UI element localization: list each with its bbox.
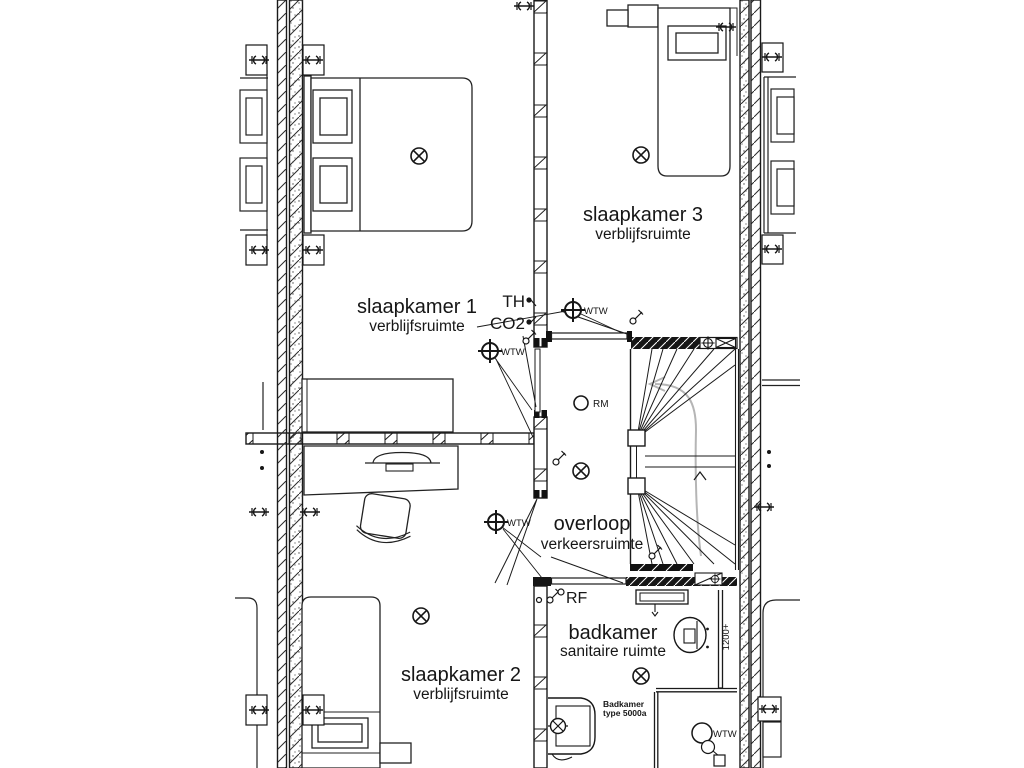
label-overloop-sub: verkeersruimte: [541, 536, 644, 553]
label-wtw-1: WTW: [584, 306, 608, 317]
bed-slaapkamer1: [304, 76, 472, 233]
label-slaapkamer1-sub: verblijfsruimte: [369, 318, 465, 335]
wall-party-left: [278, 0, 303, 768]
label-th: TH: [502, 292, 525, 311]
label-slaapkamer3-sub: verblijfsruimte: [595, 226, 691, 243]
smoke-detector: [574, 396, 588, 410]
label-co2: CO2: [490, 314, 525, 333]
label-overloop: overloop: [554, 513, 631, 535]
label-slaapkamer2-sub: verblijfsruimte: [413, 686, 509, 703]
nightstand: [628, 5, 658, 27]
label-slaapkamer2: slaapkamer 2: [401, 664, 521, 686]
nightstand: [380, 743, 411, 763]
washbasin: [548, 698, 595, 760]
label-slaapkamer1: slaapkamer 1: [357, 296, 477, 318]
label-slaapkamer3: slaapkamer 3: [583, 204, 703, 226]
wall-stair-top: [631, 336, 737, 349]
label-height-1200: 1200+: [721, 623, 732, 650]
label-badkamer-sub: sanitaire ruimte: [560, 643, 666, 660]
wardrobe-slaapkamer1: [302, 379, 453, 432]
label-rf: RF: [566, 590, 588, 607]
label-bath-type-2: type 5000a: [603, 708, 647, 718]
label-wtw-3: WTW: [507, 518, 531, 529]
label-wtw-2: WTW: [501, 347, 525, 358]
label-rm: RM: [593, 399, 609, 410]
floorplan-drawing: slaapkamer 1 verblijfsruimte slaapkamer …: [0, 0, 1024, 768]
label-wtw-shower: WTW: [713, 729, 737, 740]
paper-background: [0, 0, 1024, 768]
floorplan-page: slaapkamer 1 verblijfsruimte slaapkamer …: [0, 0, 1024, 768]
label-badkamer: badkamer: [569, 622, 658, 644]
nightstand: [607, 10, 628, 26]
